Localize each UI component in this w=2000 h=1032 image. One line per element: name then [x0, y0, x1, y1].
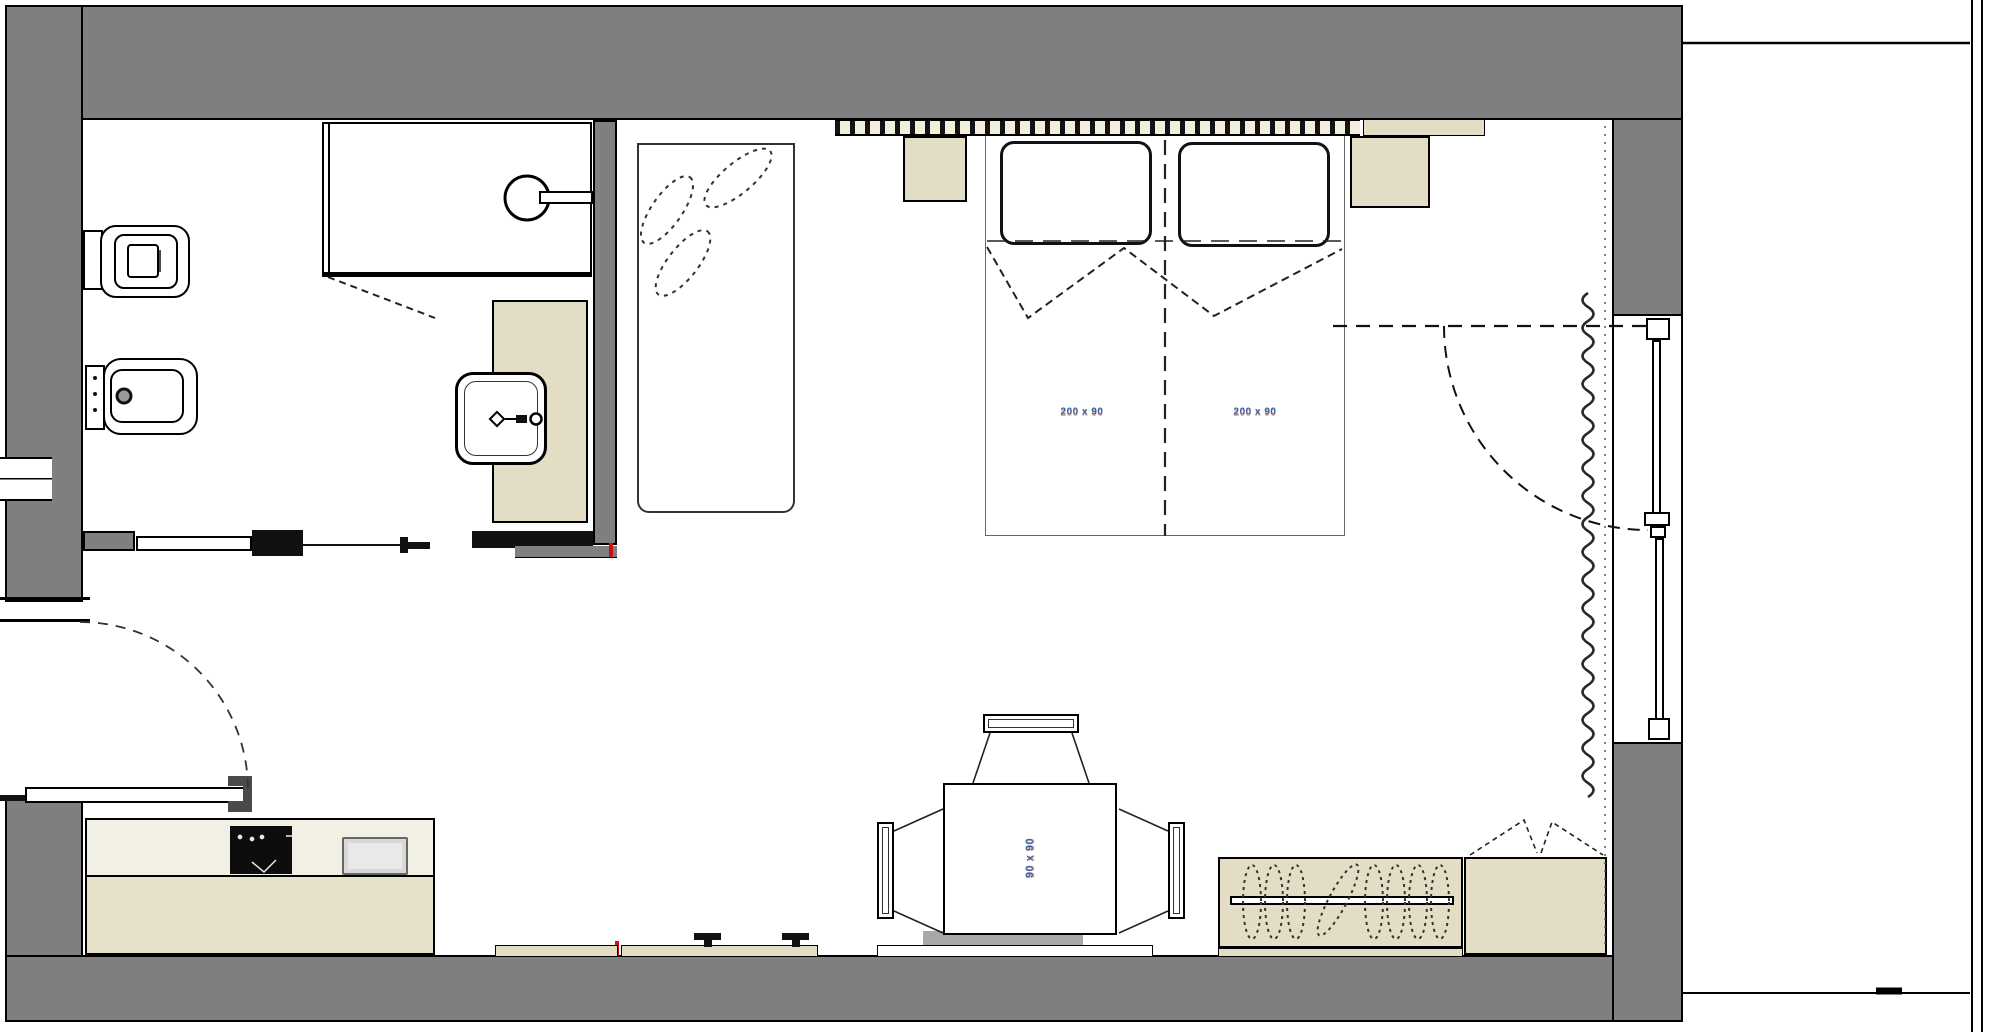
entry-threshold-line-bottom [0, 619, 90, 622]
window-opening [1612, 316, 1683, 742]
wall-right-upper [1612, 118, 1683, 316]
plinth-strip-left [495, 945, 618, 957]
sliding-door-panel [136, 536, 252, 551]
bed-left-dimension-label: 200 x 90 [1061, 407, 1104, 418]
chair-top-backrest [983, 714, 1079, 733]
wall-top [5, 5, 1683, 120]
bidet-cistern [85, 365, 105, 430]
terrace-outline [1683, 0, 1982, 1032]
washbasin-inner [464, 381, 538, 456]
entry-threshold-line-top [0, 597, 90, 600]
window-handle-b [1650, 526, 1666, 538]
bed-right-dimension-label: 200 x 90 [1234, 407, 1277, 418]
entry-door-swing-arc [80, 622, 248, 790]
wall-right-lower [1612, 742, 1683, 1022]
wall-hook-1-stem [704, 940, 712, 947]
corner-cabinet [1464, 857, 1607, 955]
chair-right-backrest [1168, 822, 1185, 919]
wall-hook-2-bar [782, 933, 809, 940]
entry-door-leaf [25, 787, 247, 803]
sliding-door-handle-bar [406, 542, 430, 549]
wall-hook-2-stem [792, 940, 800, 947]
curtain-icon [1583, 293, 1594, 797]
window-frame-bottom-cap [1648, 718, 1670, 740]
shower-door-line [328, 277, 435, 318]
pillow-right [1178, 142, 1330, 247]
entry-door-stop-c [243, 776, 252, 812]
cooktop [230, 826, 292, 874]
shower-enclosure [322, 122, 592, 277]
clothes-rail-plinth [1218, 948, 1463, 957]
window-sash-lower [1655, 538, 1664, 720]
doorway-side-wall-stub [83, 531, 135, 551]
nightstand-left [903, 136, 967, 202]
headboard-shelf [835, 119, 1360, 136]
window-handle-a [1644, 512, 1670, 526]
floor-plan: 200 x 90 200 x 90 90 x 90 [0, 0, 2000, 1032]
clothes-rail-bar [1230, 896, 1454, 905]
window-sill-bench [877, 945, 1153, 957]
wardrobe [637, 143, 795, 513]
toilet-drain [127, 244, 159, 278]
kitchen-sink [342, 837, 408, 875]
bidet-bowl-inner [110, 369, 184, 423]
nightstand-right [1350, 136, 1430, 208]
left-wall-niche [0, 457, 52, 501]
window-sash-upper [1652, 340, 1661, 514]
bathroom-partition-wall [593, 120, 617, 545]
shower-enclosure-inner-line [328, 122, 330, 275]
window-frame-top-cap [1646, 318, 1670, 340]
red-marker-bathroom [609, 543, 613, 557]
kitchen-sink-basin [348, 843, 402, 869]
wall-hook-1-bar [694, 933, 721, 940]
sliding-door-pocket [252, 530, 303, 556]
cabinet-fold-triangles [1470, 820, 1603, 855]
kitchen-cabinet-base [87, 877, 433, 953]
high-shelf-strip [1363, 119, 1485, 136]
balcony-door-swing [1333, 326, 1648, 530]
table-dimension-label: 90 x 90 [1024, 838, 1036, 878]
wall-bottom [5, 955, 1683, 1022]
bathroom-south-wall-stub [515, 546, 617, 558]
chair-left-backrest [877, 822, 894, 919]
wall-left-upper [5, 5, 83, 602]
plinth-strip-right [621, 945, 818, 957]
pillow-left [1000, 141, 1152, 245]
